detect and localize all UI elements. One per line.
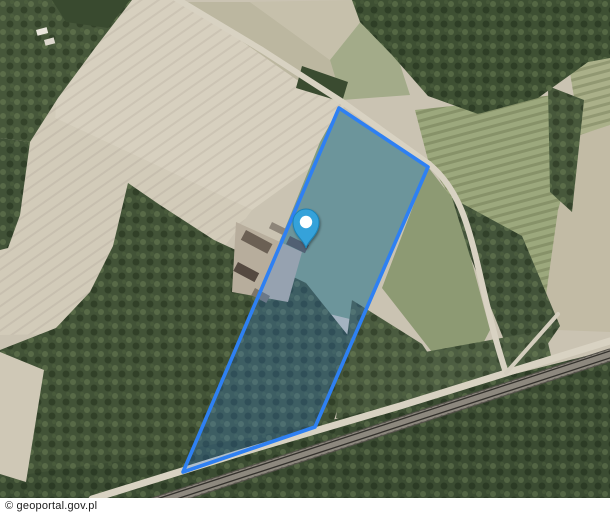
attribution-text: © geoportal.gov.pl — [5, 500, 97, 512]
pin-hole — [300, 216, 312, 228]
attribution-bar: © geoportal.gov.pl — [0, 498, 610, 515]
map-viewport[interactable]: © geoportal.gov.pl — [0, 0, 610, 515]
aerial-imagery — [0, 0, 610, 515]
